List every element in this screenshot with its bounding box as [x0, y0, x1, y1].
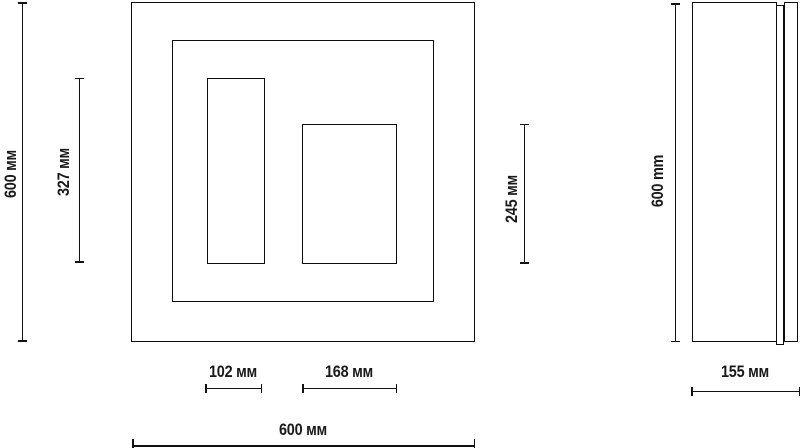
dimension-tick [396, 384, 398, 393]
dimension-tick [18, 340, 27, 342]
dimension-tick [132, 439, 134, 448]
dimension-tick [75, 261, 84, 263]
dimension-line [675, 3, 676, 342]
dimension-tick [474, 439, 476, 448]
dim-left-cutout-height-label: 327 мм [54, 148, 74, 196]
dimension-tick [261, 384, 263, 393]
dim-side-overall-height-label: 600 mm [648, 155, 668, 207]
dimension-line [205, 388, 262, 389]
dim-left-cutout-width-label: 102 мм [209, 362, 257, 382]
side-view-groove-strip [776, 5, 784, 345]
dimension-line [524, 124, 525, 263]
side-view-body [692, 2, 777, 342]
dimension-tick [205, 384, 207, 393]
dim-right-cutout-width-label: 168 мм [325, 362, 373, 382]
dim-front-overall-height-label: 600 мм [1, 150, 21, 198]
dimension-tick [799, 387, 801, 396]
dimension-line [302, 388, 397, 389]
dim-right-cutout-height-label: 245 мм [502, 175, 522, 223]
dimension-tick [75, 78, 84, 80]
dimension-line [691, 391, 800, 392]
dim-side-overall-depth-label: 155 мм [721, 362, 769, 382]
dimension-tick [302, 384, 304, 393]
front-left-cutout [207, 78, 265, 264]
dimension-line [22, 2, 23, 341]
dimension-tick [671, 341, 680, 343]
dimension-tick [691, 387, 693, 396]
dimension-line [132, 445, 475, 446]
side-view-back-panel [784, 2, 798, 342]
dimension-line [79, 78, 80, 262]
dimension-tick [671, 3, 680, 5]
front-right-cutout [302, 124, 397, 264]
dimension-tick [520, 262, 529, 264]
dimension-tick [18, 2, 27, 4]
dimension-tick [520, 124, 529, 126]
dim-front-overall-width-label: 600 мм [279, 420, 327, 440]
dimension-drawing: 600 мм 327 мм 245 мм 102 мм 168 мм 600 м… [0, 0, 801, 448]
